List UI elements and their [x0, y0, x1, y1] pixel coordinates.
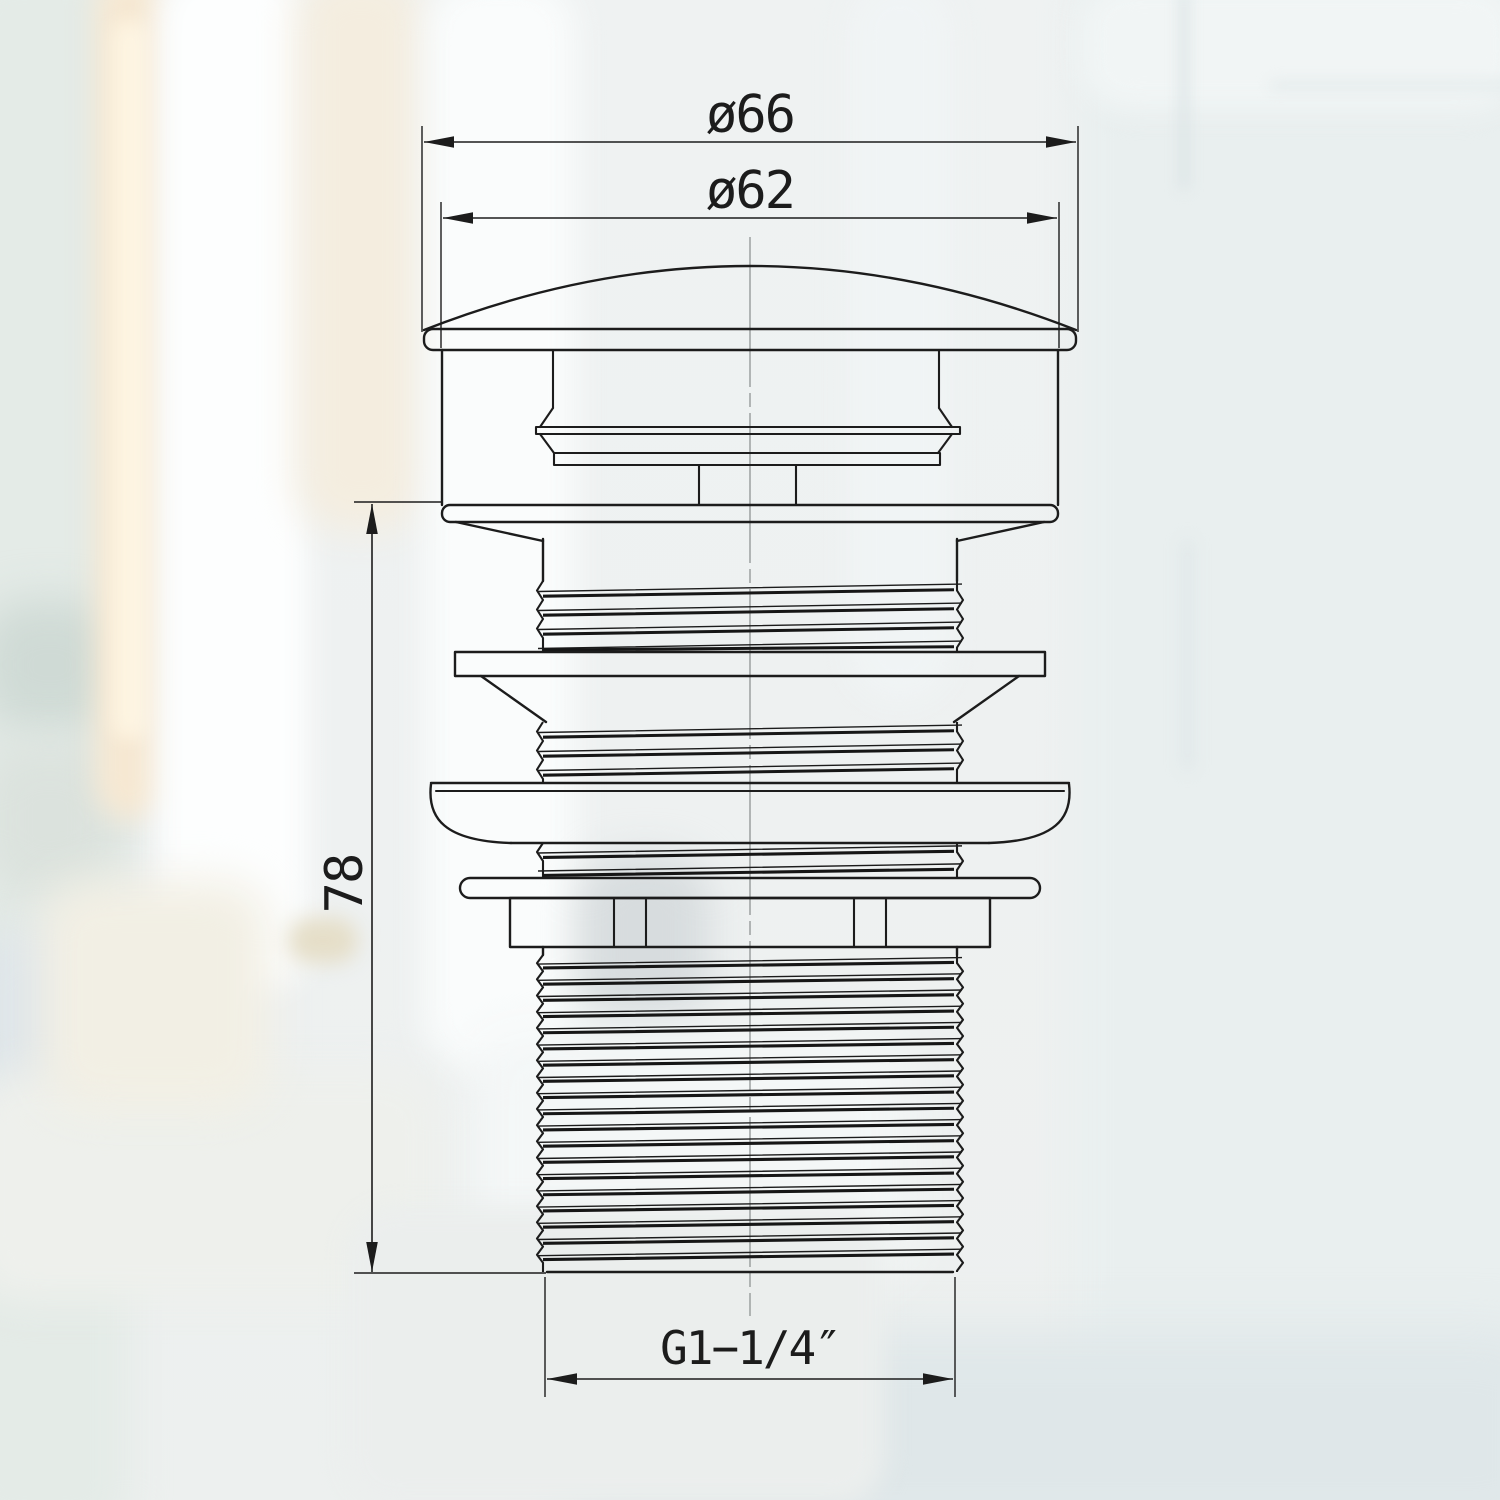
dimension-body-height: 78 [315, 502, 546, 1273]
technical-drawing: ø66 ø62 78 G1−1/4″ [0, 0, 1500, 1500]
thread-line [537, 843, 543, 878]
thread-line [957, 843, 963, 878]
thread-line [543, 590, 954, 650]
thread-line [543, 731, 954, 775]
dim-label-outer-diameter: ø66 [706, 85, 794, 145]
dim-label-thread-size: G1−1/4″ [660, 1321, 840, 1375]
thread-line [957, 955, 963, 1272]
screenshot-root: ø66 ø62 78 G1−1/4″ [0, 0, 1500, 1500]
dim-label-body-height: 78 [315, 855, 375, 914]
popup-mechanism [536, 350, 960, 505]
thread-line [537, 722, 543, 783]
thread-line [543, 851, 954, 875]
thread-line [537, 955, 543, 1272]
thread-line [957, 722, 963, 783]
dim-label-cap-diameter: ø62 [706, 161, 794, 221]
